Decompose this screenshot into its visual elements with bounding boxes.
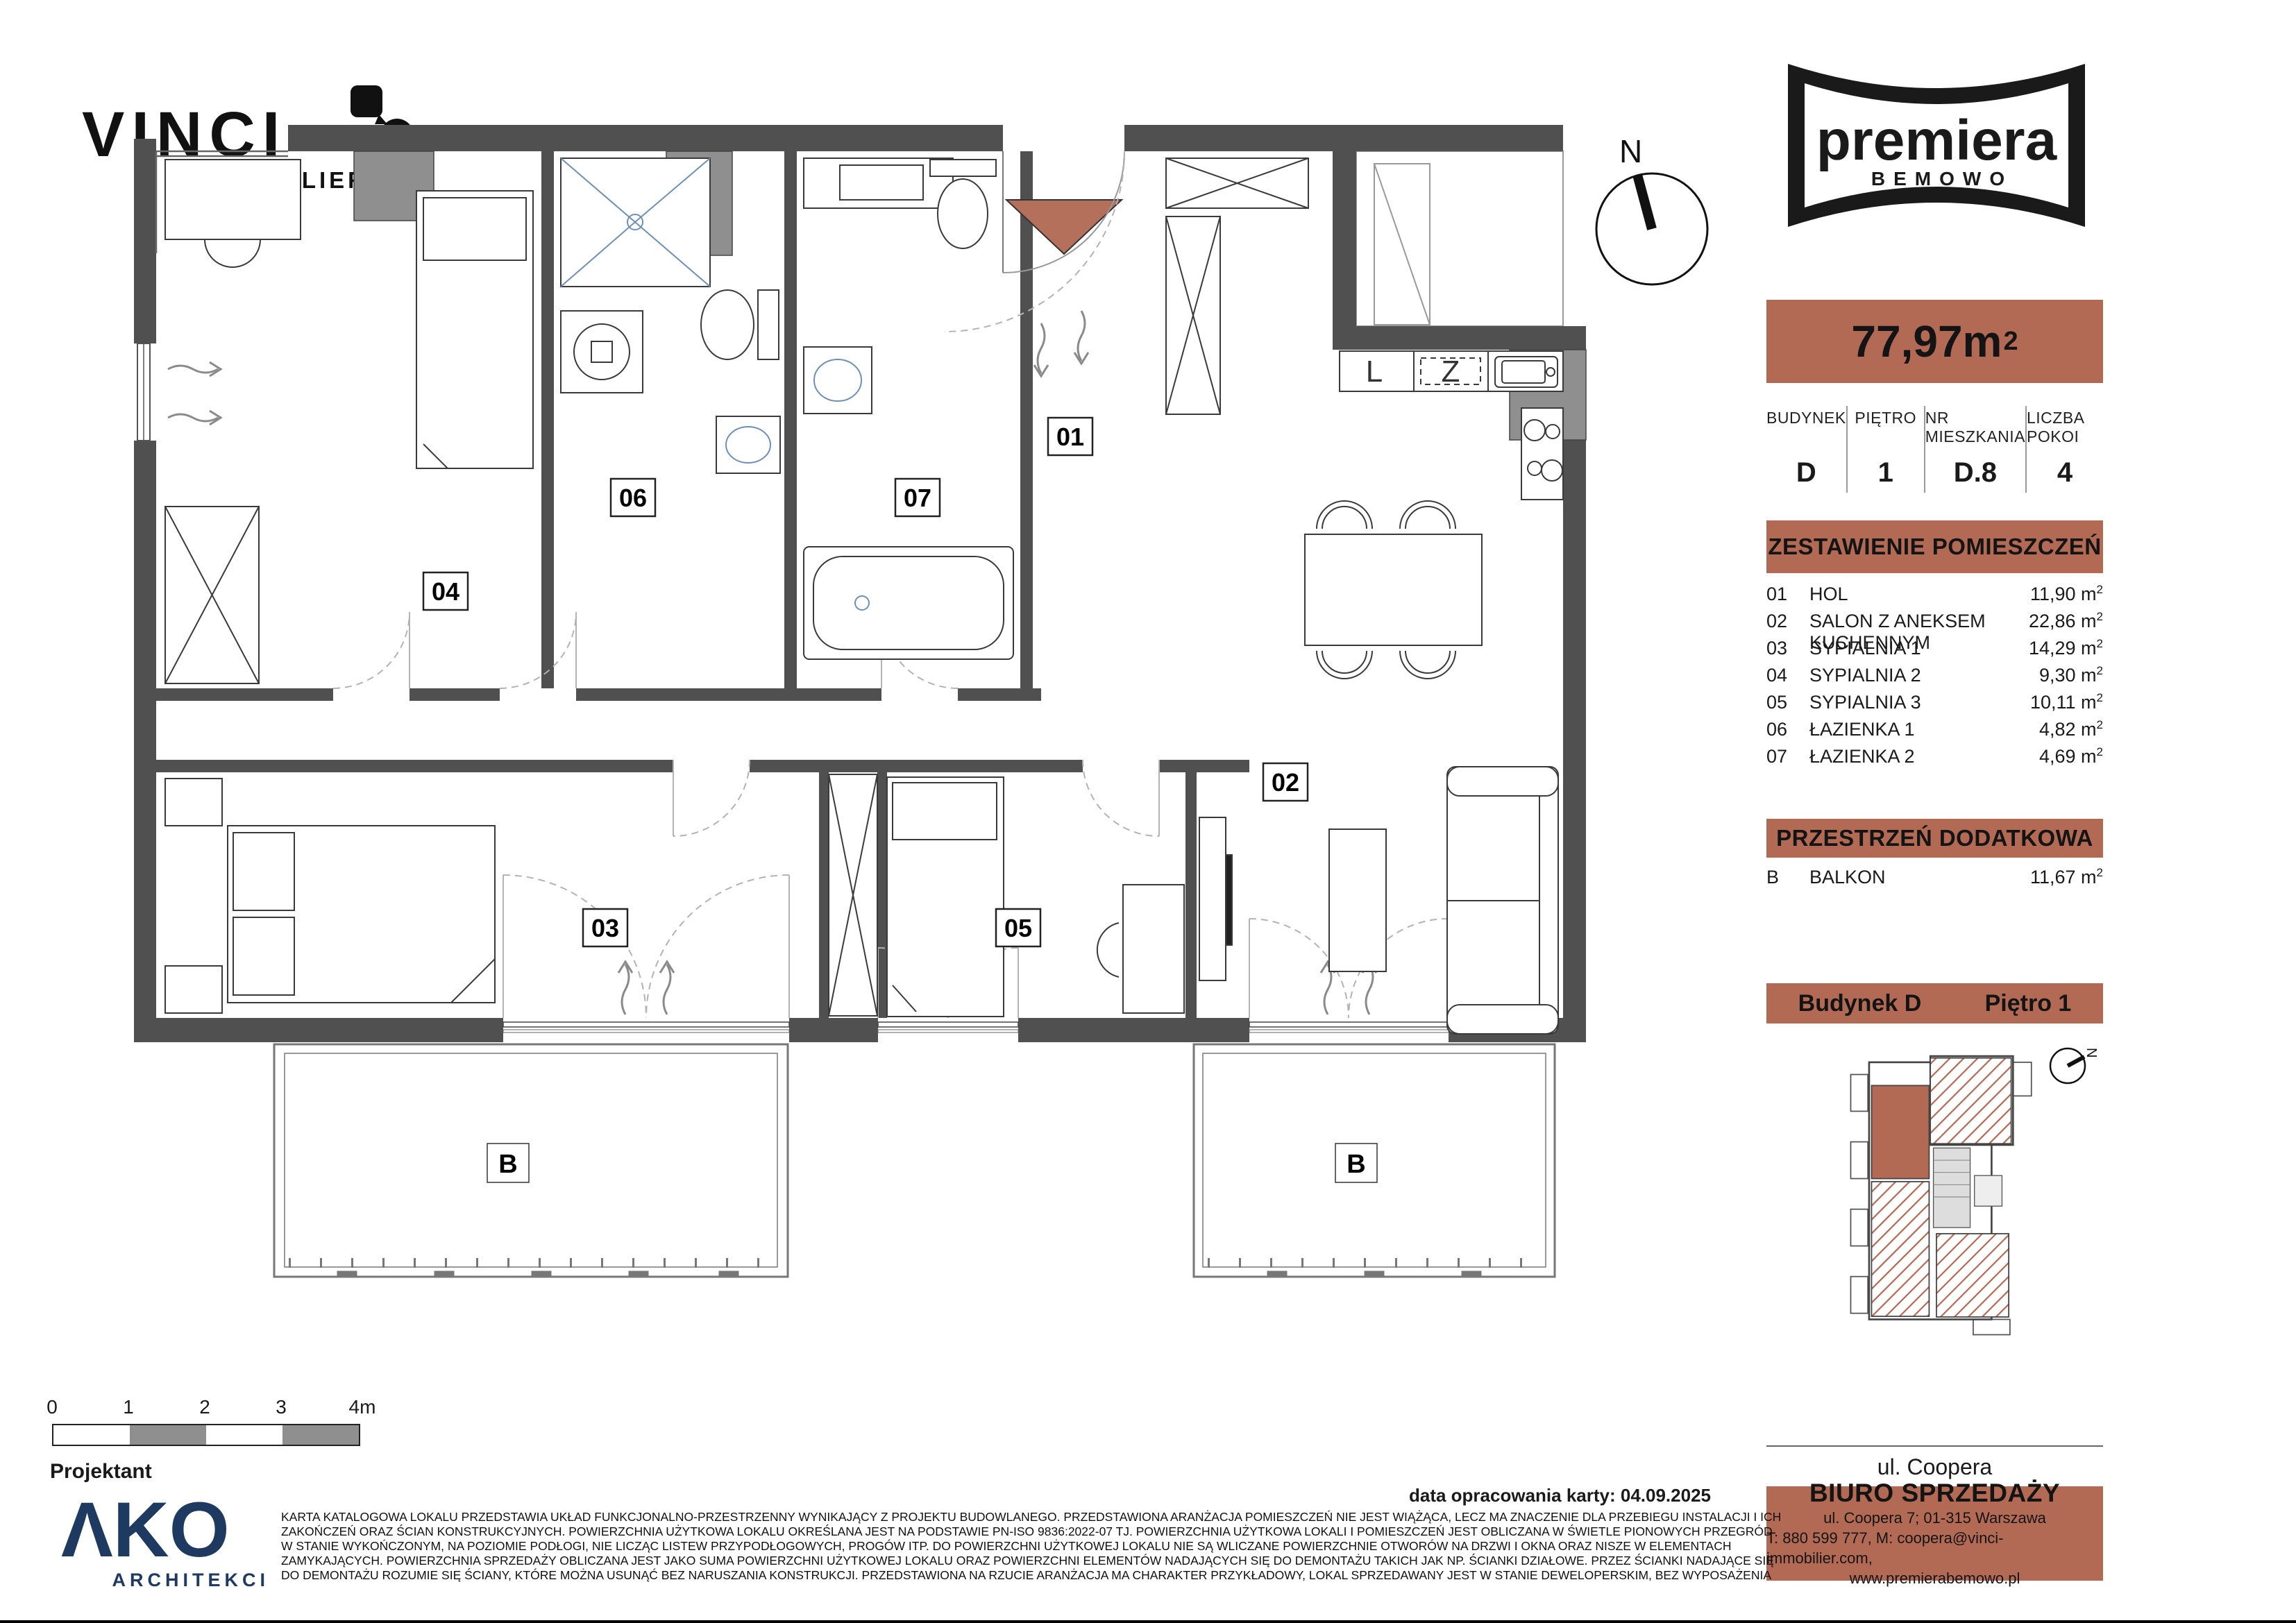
- svg-text:B: B: [1347, 1150, 1365, 1179]
- table-row: BBALKON 11,67 m2: [1766, 866, 2103, 893]
- wardrobe: [165, 507, 259, 683]
- page-bottom-border: [0, 1620, 2296, 1623]
- desk: [1123, 885, 1184, 1013]
- nightstand: [165, 966, 222, 1013]
- svg-text:07: 07: [904, 484, 931, 512]
- toilet: [930, 160, 996, 248]
- scale-bar: [52, 1424, 360, 1446]
- table-row: 06ŁAZIENKA 1 4,82 m2: [1766, 718, 2103, 745]
- fridge-letter: L: [1366, 355, 1383, 389]
- floor-plan: L Z 01 02 03 04 05 06 07 B B: [125, 118, 1596, 1360]
- coffee-table: [1329, 829, 1386, 971]
- sales-office-contact: T: 880 599 777, M: coopera@vinci-immobil…: [1766, 1528, 2103, 1568]
- table-row: 04SYPIALNIA 2 9,30 m2: [1766, 664, 2103, 691]
- extra-list: BBALKON 11,67 m2: [1766, 866, 2103, 893]
- info-liczba-pokoi: LICZBA POKOI 4: [2025, 406, 2103, 493]
- bed-single: [887, 777, 1004, 1017]
- svg-text:03: 03: [591, 914, 619, 942]
- svg-text:01: 01: [1056, 423, 1084, 451]
- ako-logo-text: ΛKO: [61, 1492, 283, 1568]
- premiera-bemowo-logo: premiera BEMOWO: [1784, 43, 2089, 248]
- svg-text:05: 05: [1004, 914, 1032, 942]
- apartment-info-table: BUDYNEK D PIĘTRO 1 NR MIESZKANIA D.8 LIC…: [1766, 406, 2103, 493]
- key-plan-unit-hatched: [1930, 1058, 2011, 1144]
- chair: [1097, 923, 1119, 977]
- info-pietro: PIĘTRO 1: [1846, 406, 1924, 493]
- key-plan-unit-hatched: [1936, 1234, 2009, 1317]
- washing-machine: [561, 311, 643, 393]
- disclaimer-text: KARTA KATALOGOWA LOKALU PRZEDSTAWIA UKŁA…: [281, 1510, 1711, 1583]
- bathtub: [804, 547, 1013, 659]
- table-row: 02SALON Z ANEKSEM KUCHENNYM 22,86 m2: [1766, 610, 2103, 637]
- key-plan: [1832, 1037, 2041, 1357]
- sales-office-banner: BIURO SPRZEDAŻY ul. Coopera 7; 01-315 Wa…: [1766, 1486, 2103, 1581]
- closet: [1166, 216, 1220, 414]
- bemowo-text: BEMOWO: [1871, 168, 2013, 189]
- svg-text:B: B: [498, 1150, 517, 1179]
- sales-office-title: BIURO SPRZEDAŻY: [1809, 1479, 2060, 1508]
- nightstand: [165, 779, 222, 826]
- building-floor-banner: Budynek D Piętro 1: [1766, 983, 2103, 1023]
- sales-office-website: www.premierabemowo.pl: [1850, 1568, 2020, 1588]
- key-plan-compass: N: [2044, 1039, 2107, 1088]
- dining-table: [1305, 534, 1482, 645]
- tv-unit: [1199, 817, 1226, 980]
- svg-text:N: N: [2084, 1048, 2099, 1057]
- desk: [165, 160, 301, 239]
- floor-label: Piętro 1: [1985, 990, 2072, 1017]
- projektant-label: Projektant: [50, 1460, 152, 1484]
- sales-office-address: ul. Coopera 7; 01-315 Warszawa: [1823, 1508, 2046, 1528]
- toilet: [701, 290, 779, 359]
- premiera-text: premiera: [1816, 109, 2058, 172]
- area-value: 77,97m: [1851, 316, 2002, 367]
- key-plan-unit-hatched: [1871, 1182, 1929, 1316]
- pillow: [423, 198, 526, 260]
- extra-section-title: PRZESTRZEŃ DODATKOWA: [1766, 819, 2103, 858]
- sink: [716, 416, 780, 473]
- card-date: data opracowania karty: 04.09.2025: [1378, 1485, 1711, 1506]
- window-room04: [137, 343, 221, 441]
- sink: [804, 347, 872, 414]
- dishwasher-letter: Z: [1442, 355, 1460, 389]
- neighbour-area: [1356, 151, 1563, 326]
- closet: [1166, 158, 1308, 208]
- tv: [1226, 855, 1232, 945]
- table-row: 07ŁAZIENKA 2 4,69 m2: [1766, 745, 2103, 772]
- street-name: ul. Coopera: [1766, 1454, 2103, 1480]
- pillow: [233, 917, 294, 995]
- rooms-section-title: ZESTAWIENIE POMIESZCZEŃ: [1766, 520, 2103, 573]
- pillow: [893, 783, 997, 840]
- sofa: [1447, 767, 1558, 1034]
- wardrobe: [829, 774, 877, 1016]
- svg-text:06: 06: [619, 484, 647, 512]
- pillow: [233, 833, 294, 910]
- svg-text:04: 04: [432, 577, 459, 606]
- ako-architekci-logo: ΛKO ARCHITEKCI: [61, 1492, 283, 1591]
- area-banner: 77,97m2: [1766, 300, 2103, 383]
- catalog-card: VINCI IMMOBILIER N: [0, 0, 2296, 1623]
- table-row: 01HOL 11,90 m2: [1766, 583, 2103, 610]
- info-budynek: BUDYNEK D: [1766, 406, 1846, 493]
- compass-n-label: N: [1619, 133, 1642, 169]
- divider: [1766, 1445, 2103, 1447]
- info-nr-mieszkania: NR MIESZKANIA D.8: [1924, 406, 2025, 493]
- hob: [1521, 408, 1563, 500]
- key-plan-unit-current: [1871, 1085, 1929, 1178]
- bed-double: [228, 826, 495, 1003]
- area-sup: 2: [2003, 327, 2018, 357]
- building-label: Budynek D: [1798, 990, 1922, 1017]
- table-row: 03SYPIALNIA 1 14,29 m2: [1766, 637, 2103, 664]
- table-row: 05SYPIALNIA 3 10,11 m2: [1766, 691, 2103, 718]
- rooms-list: 01HOL 11,90 m2 02SALON Z ANEKSEM KUCHENN…: [1766, 583, 2103, 772]
- shower: [561, 158, 710, 287]
- scale-labels: 0 1 2 3 4m: [42, 1396, 389, 1417]
- balcony-left: [274, 1044, 788, 1277]
- chair: [205, 239, 260, 267]
- svg-text:02: 02: [1272, 768, 1299, 797]
